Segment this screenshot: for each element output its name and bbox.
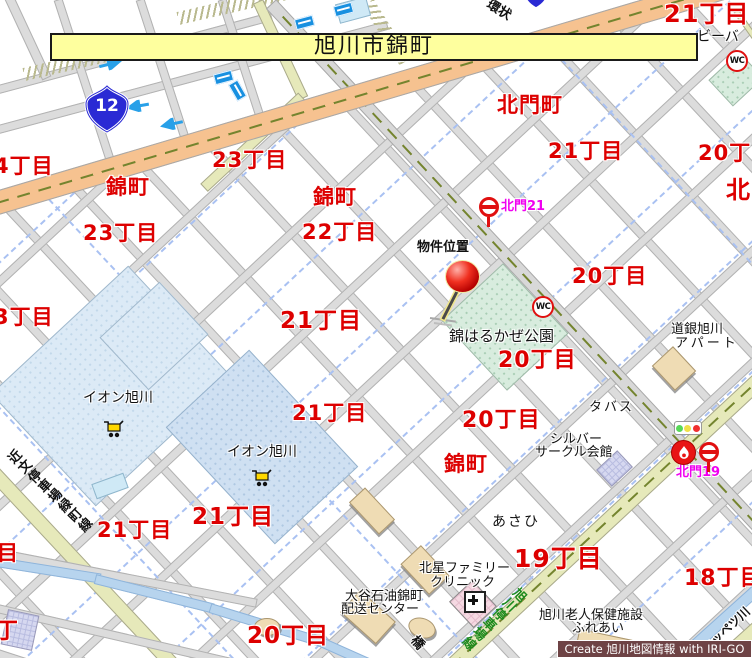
- area-label: 20丁目: [572, 265, 647, 287]
- area-label: 21丁目: [292, 402, 367, 424]
- bus-stop-icon: [697, 442, 719, 474]
- area-label: 錦町: [313, 186, 357, 208]
- place-label: サークル会館: [535, 446, 613, 460]
- area-label: 23丁目: [83, 222, 158, 244]
- place-label: 道銀旭川: [671, 323, 723, 337]
- area-label: 目: [0, 542, 19, 564]
- shopping-cart-icon: [250, 467, 273, 492]
- place-label: タバス: [589, 401, 634, 415]
- area-label: 丁: [0, 619, 19, 643]
- route-shield-partial: [523, 0, 549, 9]
- area-label: 21丁目: [192, 505, 274, 529]
- road-name-label: 近文停車場緑町線: [4, 449, 94, 536]
- hospital-cross-icon: [464, 591, 486, 613]
- wc-icon: WC: [726, 50, 748, 72]
- place-label: 錦はるかぜ公園: [449, 329, 554, 345]
- place-label: あさひ: [492, 515, 540, 530]
- area-label: 20丁目: [498, 349, 577, 372]
- fire-station-icon: [671, 440, 696, 465]
- road-name-label: 橋: [408, 634, 427, 653]
- map-canvas[interactable]: WCWC 北門21北門1921丁目北門町21丁目20丁目北門町4丁目錦町23丁目…: [0, 0, 752, 658]
- route-number: 12: [84, 96, 130, 116]
- place-label: ビーバ: [697, 30, 739, 45]
- road-name-label: 環状: [484, 0, 513, 23]
- route-12-shield: 12: [84, 85, 130, 133]
- area-label: 20丁目: [247, 624, 329, 648]
- wc-icon: WC: [532, 296, 554, 318]
- place-label: イオン旭川: [227, 445, 297, 460]
- area-label: 3丁目: [0, 306, 54, 328]
- map-attribution: Create 旭川地図情報 with IRI-GO: [557, 640, 752, 658]
- page-title: 旭川市錦町: [50, 33, 698, 61]
- area-label: 北門町: [497, 94, 563, 116]
- area-label: 22丁目: [302, 221, 377, 243]
- area-label: 19丁目: [514, 546, 603, 572]
- place-label: イオン旭川: [83, 391, 153, 406]
- location-pin-icon: [446, 261, 479, 292]
- bus-stop-icon: [477, 197, 499, 229]
- area-label: 18丁目: [684, 567, 752, 590]
- place-label: アパート: [675, 337, 739, 351]
- place-label: 北星ファミリー: [419, 562, 510, 576]
- place-label: ふれあい: [572, 622, 624, 636]
- area-label: 錦町: [106, 176, 150, 198]
- area-label: 23丁目: [212, 149, 287, 171]
- area-label: 21丁目: [280, 309, 362, 333]
- area-label: 20丁目: [462, 409, 541, 432]
- place-label: 物件位置: [417, 241, 469, 255]
- area-label: 21丁目: [97, 519, 172, 541]
- shopping-cart-icon: [102, 418, 125, 443]
- place-label: クリニック: [430, 576, 495, 590]
- area-label: 21丁目: [664, 2, 749, 27]
- place-label: 配送センター: [341, 603, 419, 617]
- area-label: 北門町: [726, 178, 752, 203]
- area-label: 21丁目: [548, 140, 623, 162]
- traffic-light-icon: [674, 421, 702, 435]
- area-label: 20丁目: [698, 142, 752, 164]
- bus-stop-label: 北門21: [501, 200, 545, 214]
- area-label: 錦町: [444, 453, 488, 475]
- area-label: 4丁目: [0, 155, 54, 177]
